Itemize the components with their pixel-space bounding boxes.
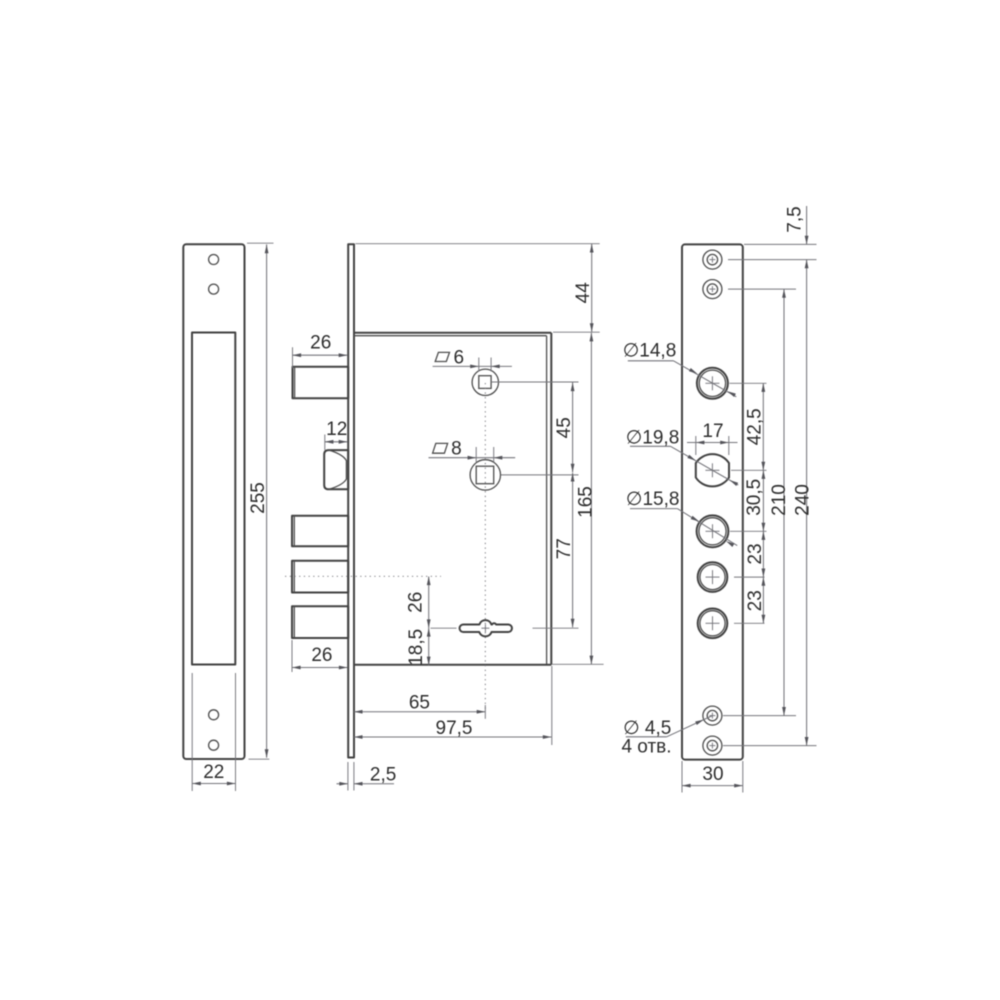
svg-text:8: 8 — [451, 438, 462, 459]
svg-text:30: 30 — [702, 764, 723, 785]
svg-text:26: 26 — [311, 645, 332, 666]
svg-text:12: 12 — [326, 419, 347, 440]
svg-text:240: 240 — [793, 484, 814, 516]
svg-text:26: 26 — [310, 333, 331, 354]
svg-text:45: 45 — [554, 417, 575, 438]
svg-text:2,5: 2,5 — [370, 764, 396, 785]
svg-text:23: 23 — [745, 543, 766, 564]
svg-text:∅15,8: ∅15,8 — [626, 489, 680, 510]
svg-text:30,5: 30,5 — [744, 479, 765, 516]
svg-text:97,5: 97,5 — [436, 718, 473, 739]
svg-text:∅19,8: ∅19,8 — [626, 428, 680, 449]
svg-text:26: 26 — [405, 592, 426, 613]
svg-text:210: 210 — [769, 484, 790, 516]
svg-text:44: 44 — [573, 282, 594, 304]
svg-text:65: 65 — [409, 692, 430, 713]
svg-text:77: 77 — [554, 538, 575, 559]
svg-text:165: 165 — [576, 486, 597, 518]
svg-text:6: 6 — [454, 347, 465, 368]
svg-text:255: 255 — [248, 482, 269, 514]
svg-text:23: 23 — [745, 590, 766, 611]
svg-text:7,5: 7,5 — [785, 206, 806, 232]
svg-text:4 отв.: 4 отв. — [621, 737, 671, 758]
svg-text:∅14,8: ∅14,8 — [623, 341, 677, 362]
svg-text:18,5: 18,5 — [406, 629, 427, 666]
svg-text:22: 22 — [203, 762, 224, 783]
svg-text:17: 17 — [702, 421, 723, 442]
svg-text:42,5: 42,5 — [744, 408, 765, 445]
